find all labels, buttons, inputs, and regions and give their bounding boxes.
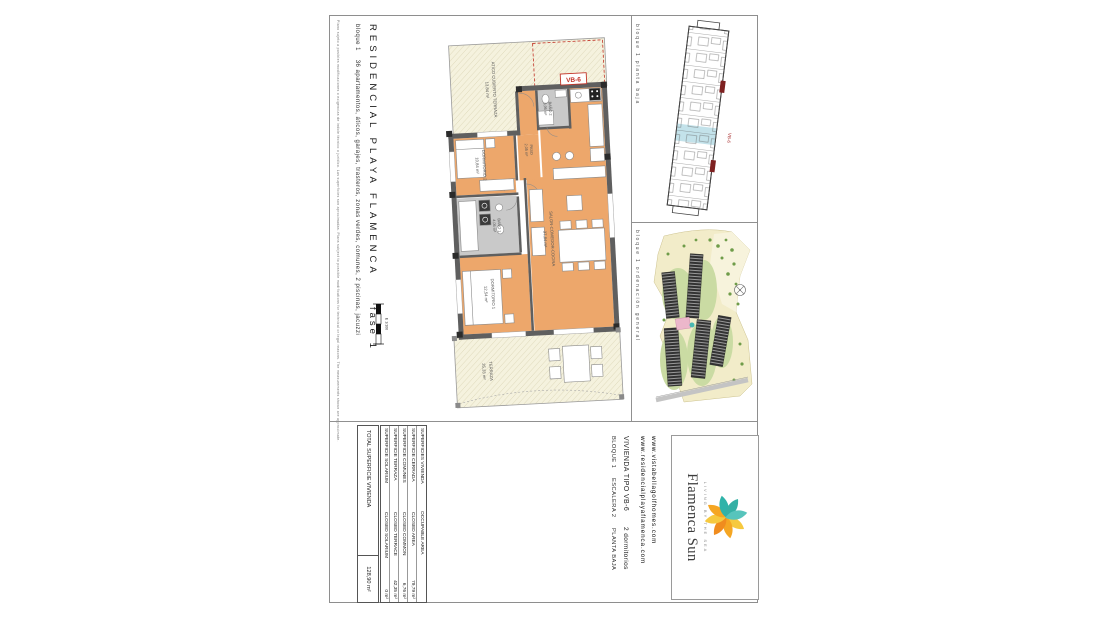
unit-stair: ESCALERA 2 <box>610 478 616 517</box>
website-residencial: www.residencialplayaflamenca.com <box>637 436 648 616</box>
surfaces-row: SUPERFICIE CERRADA CLOSED AREA 79,79 m² <box>408 426 417 602</box>
svg-text:35,33 m²: 35,33 m² <box>481 363 487 380</box>
svg-text:2,05 m²: 2,05 m² <box>524 143 529 157</box>
svg-text:BAÑO 2: BAÑO 2 <box>548 102 554 116</box>
surfaces-row: SUPERFICIE COMUNES CLOSED COMMON 6,76 m² <box>399 426 408 602</box>
surfaces-header-row: SUPERFICIES VIVIENDA OCCUPABLE AREA <box>417 426 426 602</box>
divider-footer <box>330 421 757 422</box>
block-plan-drawing: VB-6 <box>646 18 756 220</box>
unit-type-line: VIVIENDA TIPO VB-62 dormitorios <box>618 436 632 616</box>
svg-text:37,84 m²: 37,84 m² <box>542 231 548 248</box>
svg-text:TERRAZA: TERRAZA <box>488 361 494 381</box>
surfaces-table-wrap: SUPERFICIES VIVIENDA OCCUPABLE AREA SUPE… <box>357 425 427 601</box>
site-pool <box>675 317 690 330</box>
svg-text:4,05 m²: 4,05 m² <box>492 219 497 233</box>
website-vistabella: www.vistabellagolfhomes.com <box>648 436 659 616</box>
logo-box: LIVING BY THE SEA Flamenca Sun <box>671 435 759 600</box>
block-plan-unit-tag: VB-6 <box>726 133 732 144</box>
unit-location-line: BLOQUE 1ESCALERA 2PLANTA BAJA <box>607 436 618 616</box>
surfaces-total-label: TOTAL SUPERFICIE VIVIENDA <box>358 426 378 555</box>
unit-tag-label: VB-6 <box>566 76 582 84</box>
surfaces-row: SUPERFICIE SOLARIUM CLOSED SOLARIUM 0 m² <box>381 426 390 602</box>
site-plan-drawing <box>644 224 756 420</box>
surfaces-table: SUPERFICIES VIVIENDA OCCUPABLE AREA SUPE… <box>380 425 427 603</box>
unit-block: BLOQUE 1 <box>610 436 616 468</box>
divider-vertical <box>631 16 632 421</box>
page-canvas: { "sheet": { "title": "RESIDENCIAL PLAYA… <box>0 0 1110 626</box>
scale-label: E 1/100 <box>385 318 389 330</box>
unit-info-block: VIVIENDA TIPO VB-62 dormitorios BLOQUE 1… <box>607 436 632 616</box>
surfaces-row: SUPERFICIE TERRAZA CLOSED TERRACE 42,35 … <box>390 426 399 602</box>
floor-plan: VB-6 ATICO CUBIERTO TERRAZA 13,84 m² DOR… <box>422 28 632 420</box>
unit-bedrooms: 2 dormitorios <box>622 527 629 570</box>
legal-disclaimer: Plano sujeto a posibles modificaciones o… <box>335 20 340 598</box>
project-subtitle: bloque 1 36 apartamentos, áticos, garaje… <box>350 24 363 418</box>
unit-tag: VB-6 <box>560 73 587 85</box>
surfaces-header-en: OCCUPABLE AREA <box>417 511 426 602</box>
site-plan-panel-label: bloque 1 ordenación general <box>634 230 640 416</box>
svg-text:PASO: PASO <box>529 144 534 155</box>
block-plan-panel-label: bloque 1 planta baja <box>634 24 640 220</box>
project-title-line: RESIDENCIAL PLAYA FLAMENCAfase 1 <box>363 24 381 418</box>
svg-text:3,95 m²: 3,95 m² <box>543 102 548 116</box>
divider-panels <box>631 222 757 223</box>
logo-content: LIVING BY THE SEA Flamenca Sun <box>672 436 758 599</box>
surfaces-total: TOTAL SUPERFICIE VIVIENDA 128,90 m² <box>357 425 379 603</box>
title-block: RESIDENCIAL PLAYA FLAMENCAfase 1 bloque … <box>350 24 381 418</box>
surfaces-header-es: SUPERFICIES VIVIENDA <box>417 426 426 511</box>
site-jacuzzi <box>690 323 695 328</box>
surfaces-total-value: 128,90 m² <box>358 555 378 602</box>
websites-block: www.vistabellagolfhomes.com www.residenc… <box>637 436 659 616</box>
flamenca-sun-logo-icon <box>704 489 748 545</box>
unit-type: VIVIENDA TIPO VB-6 <box>622 436 629 511</box>
plan-sheet: Plano sujeto a posibles modificaciones o… <box>329 15 758 603</box>
logo-name: Flamenca Sun <box>683 436 700 599</box>
compass-icon <box>735 285 746 296</box>
graphic-scale: E 1/100 <box>372 298 388 354</box>
svg-text:BAÑO 1: BAÑO 1 <box>497 218 503 232</box>
svg-text:13,84 m²: 13,84 m² <box>484 82 490 99</box>
svg-text:10,84 m²: 10,84 m² <box>474 157 480 174</box>
unit-floor: PLANTA BAJA <box>610 528 616 570</box>
svg-text:12,54 m²: 12,54 m² <box>483 286 489 303</box>
logo-tagline: LIVING BY THE SEA <box>703 436 708 599</box>
project-title: RESIDENCIAL PLAYA FLAMENCA <box>367 24 378 277</box>
